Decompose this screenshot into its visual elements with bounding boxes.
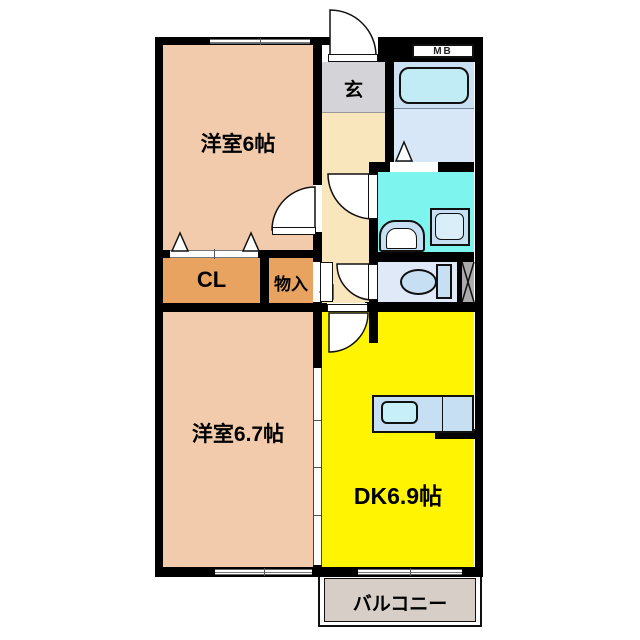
front-door-arc — [330, 10, 376, 56]
wall-washroom-toilet — [369, 252, 474, 262]
front-door-leaf — [328, 54, 378, 62]
opening-closet — [170, 250, 258, 258]
bedroom1-door-leaf — [272, 227, 316, 235]
entrance-label: 玄 — [322, 75, 385, 102]
sliding-door-bedroom2-dk — [313, 368, 322, 565]
balcony-label: バルコニー — [324, 589, 476, 616]
storage-door-leaf — [320, 262, 333, 302]
meter-box-label: MB — [433, 46, 453, 57]
dk-door-leaf — [327, 304, 368, 312]
washroom-door-leaf — [368, 174, 378, 219]
bedroom1-label: 洋室6帖 — [163, 128, 313, 158]
wall-closet-bottom — [155, 303, 322, 312]
toilet-door-leaf — [368, 264, 378, 300]
closet-label: CL — [163, 267, 260, 293]
wall-entry-bathroom — [385, 62, 394, 172]
opening-bedroom1-door — [313, 185, 322, 232]
kitchen-counter-divider — [442, 395, 443, 433]
wall-closet-divider — [260, 258, 269, 303]
washbasin-bowl — [386, 228, 417, 249]
toilet-icon — [400, 269, 437, 295]
window-bedroom2-bottom — [215, 569, 312, 575]
floor-plan: MB 洋室6帖 洋室6.7帖 DK6.9帖 玄 CL 物入 バルコニー — [0, 0, 640, 640]
opening-bathroom-door — [390, 162, 438, 172]
dining-kitchen-label: DK6.9帖 — [322, 477, 474, 511]
bedroom2-label: 洋室6.7帖 — [163, 418, 313, 448]
dining-kitchen-floor — [322, 312, 474, 567]
wall-toilet-dk — [365, 302, 483, 312]
wall-toilet-ps — [457, 262, 462, 302]
window-dk-bottom — [358, 569, 462, 575]
storage-label: 物入 — [269, 270, 313, 295]
bathtub-icon — [399, 67, 469, 104]
pipe-space — [462, 262, 474, 302]
window-bedroom1-top — [210, 39, 310, 44]
toilet-tank — [436, 264, 452, 299]
washing-machine-drum — [435, 213, 464, 240]
kitchen-sink-icon — [381, 401, 418, 424]
wall-dk-door-left — [313, 303, 327, 312]
meter-box: MB — [412, 44, 474, 58]
